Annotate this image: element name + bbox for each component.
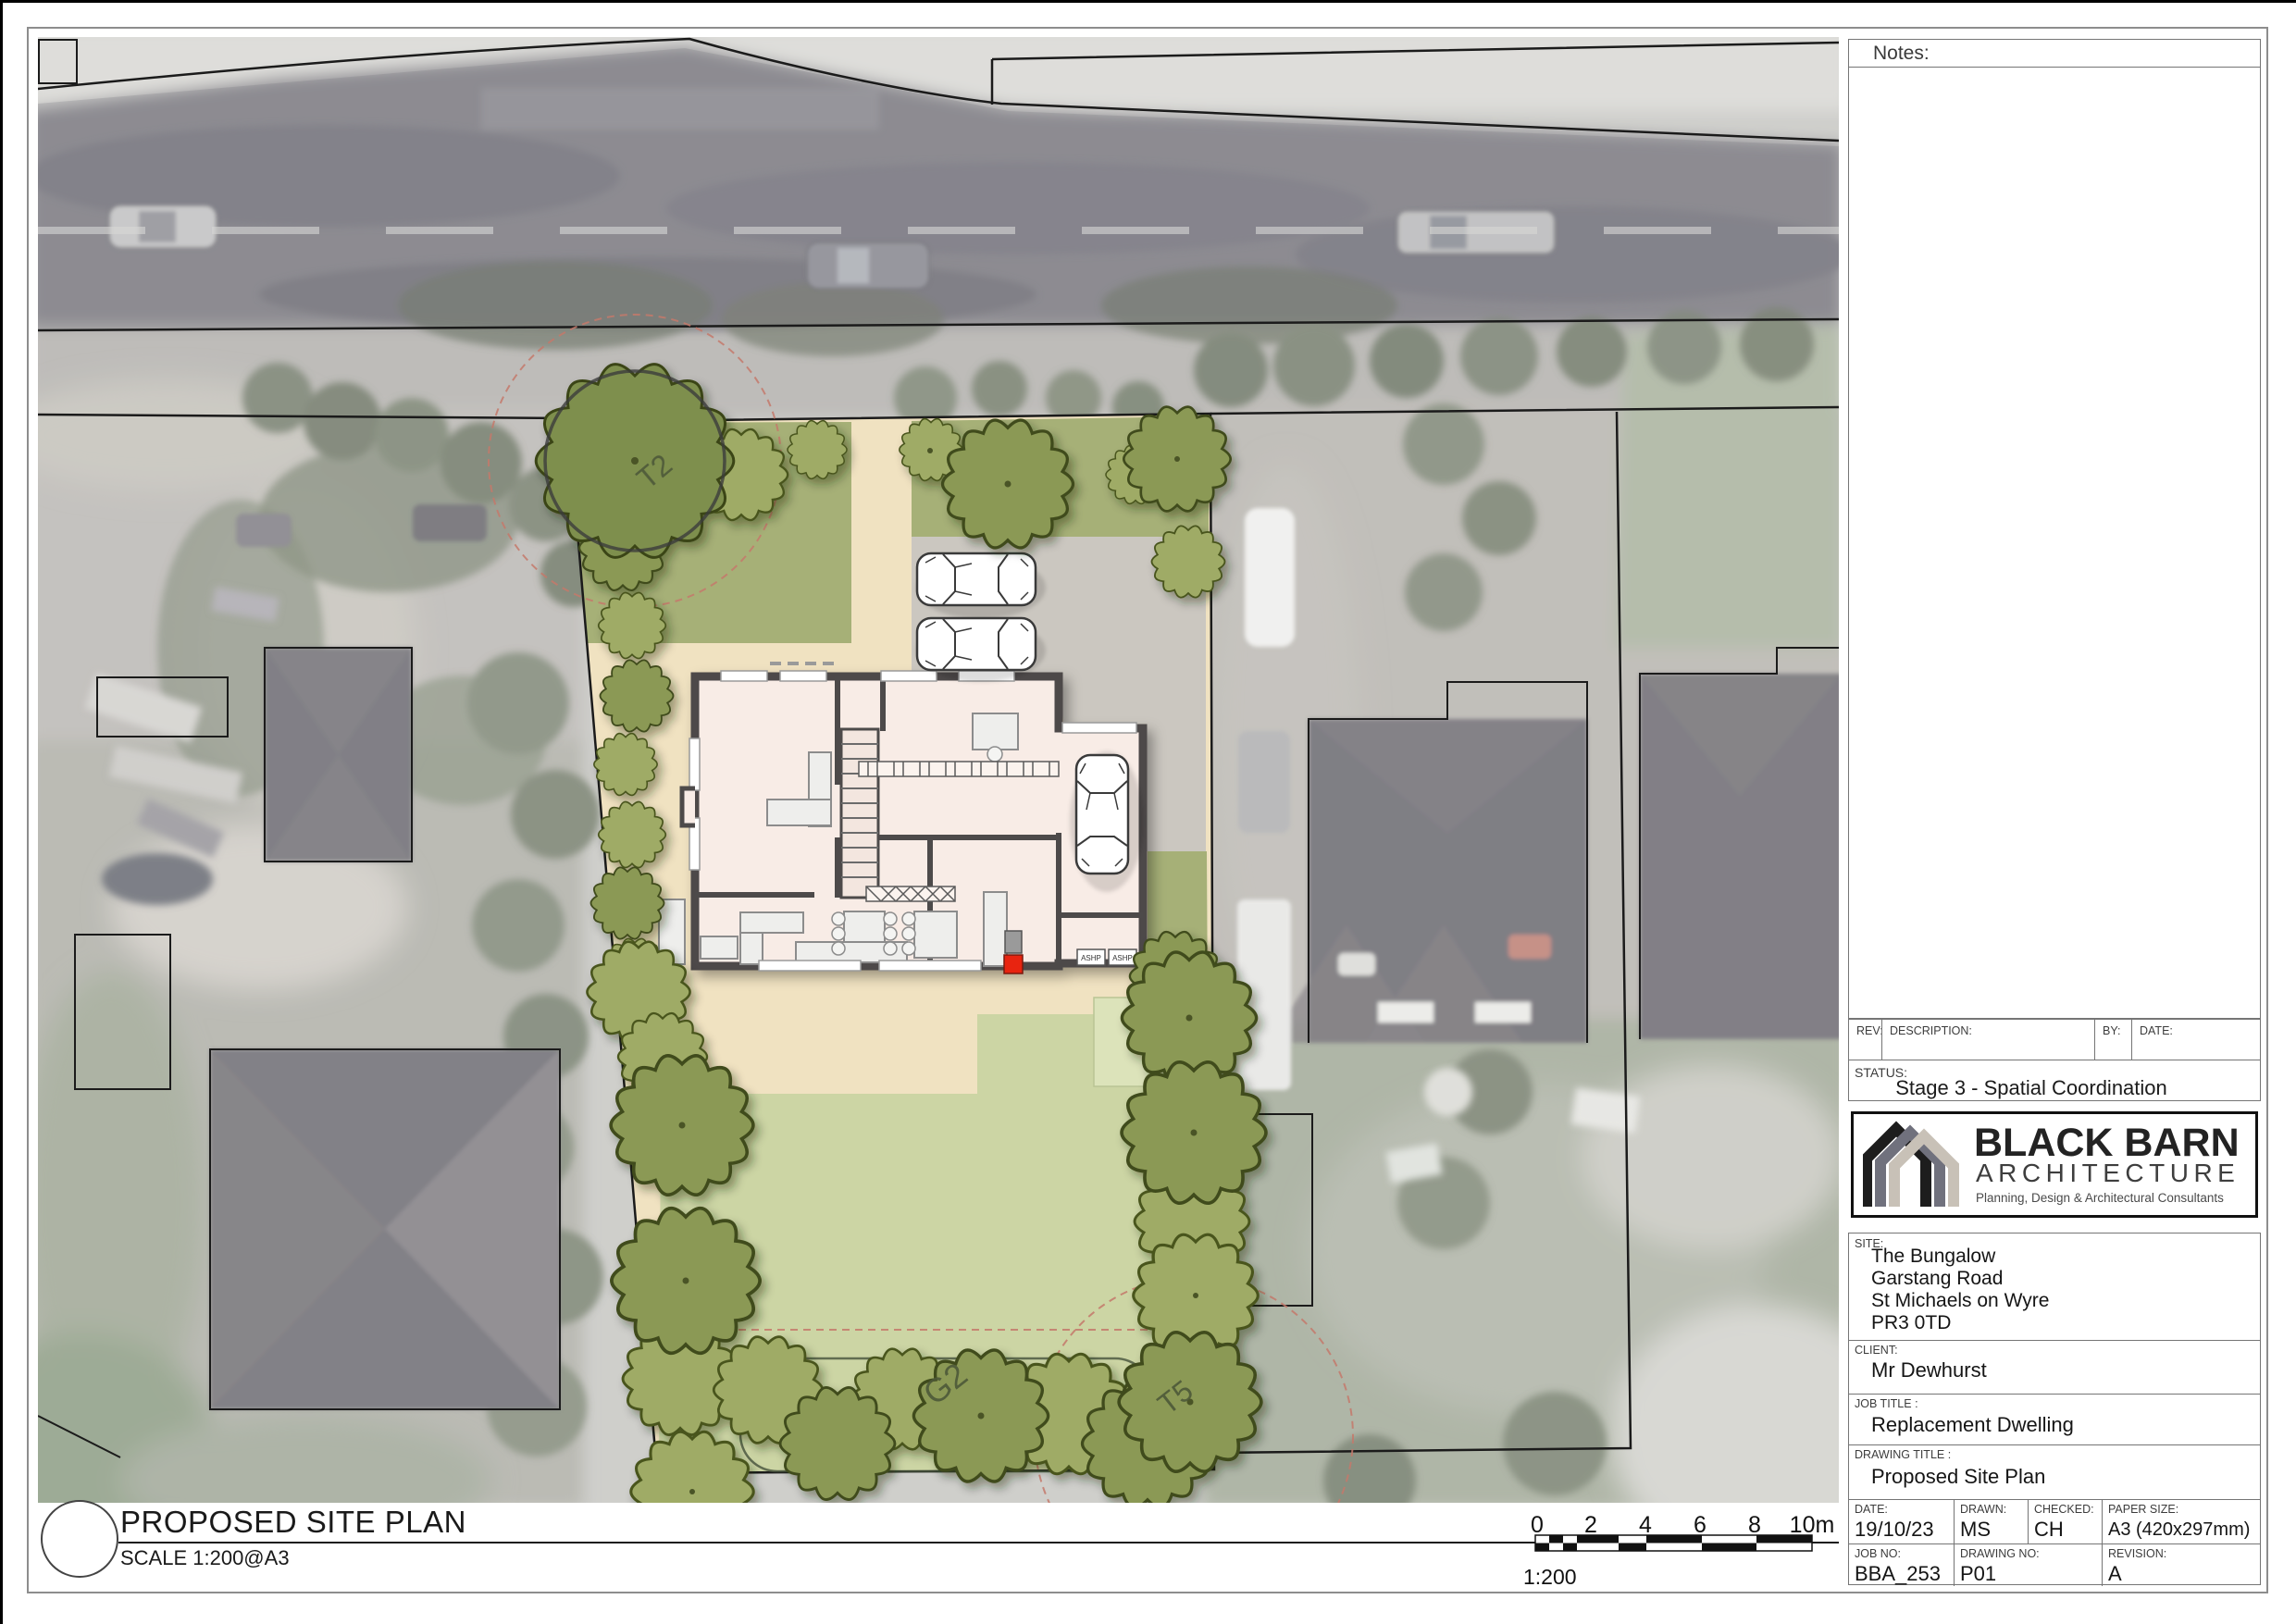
svg-text:6: 6 bbox=[1694, 1512, 1706, 1538]
svg-text:2: 2 bbox=[1584, 1512, 1597, 1538]
svg-text:1:200: 1:200 bbox=[1523, 1565, 1577, 1589]
svg-text:8: 8 bbox=[1748, 1512, 1761, 1538]
svg-text:10m: 10m bbox=[1790, 1512, 1835, 1538]
svg-text:4: 4 bbox=[1639, 1512, 1652, 1538]
svg-text:0: 0 bbox=[1531, 1512, 1544, 1538]
